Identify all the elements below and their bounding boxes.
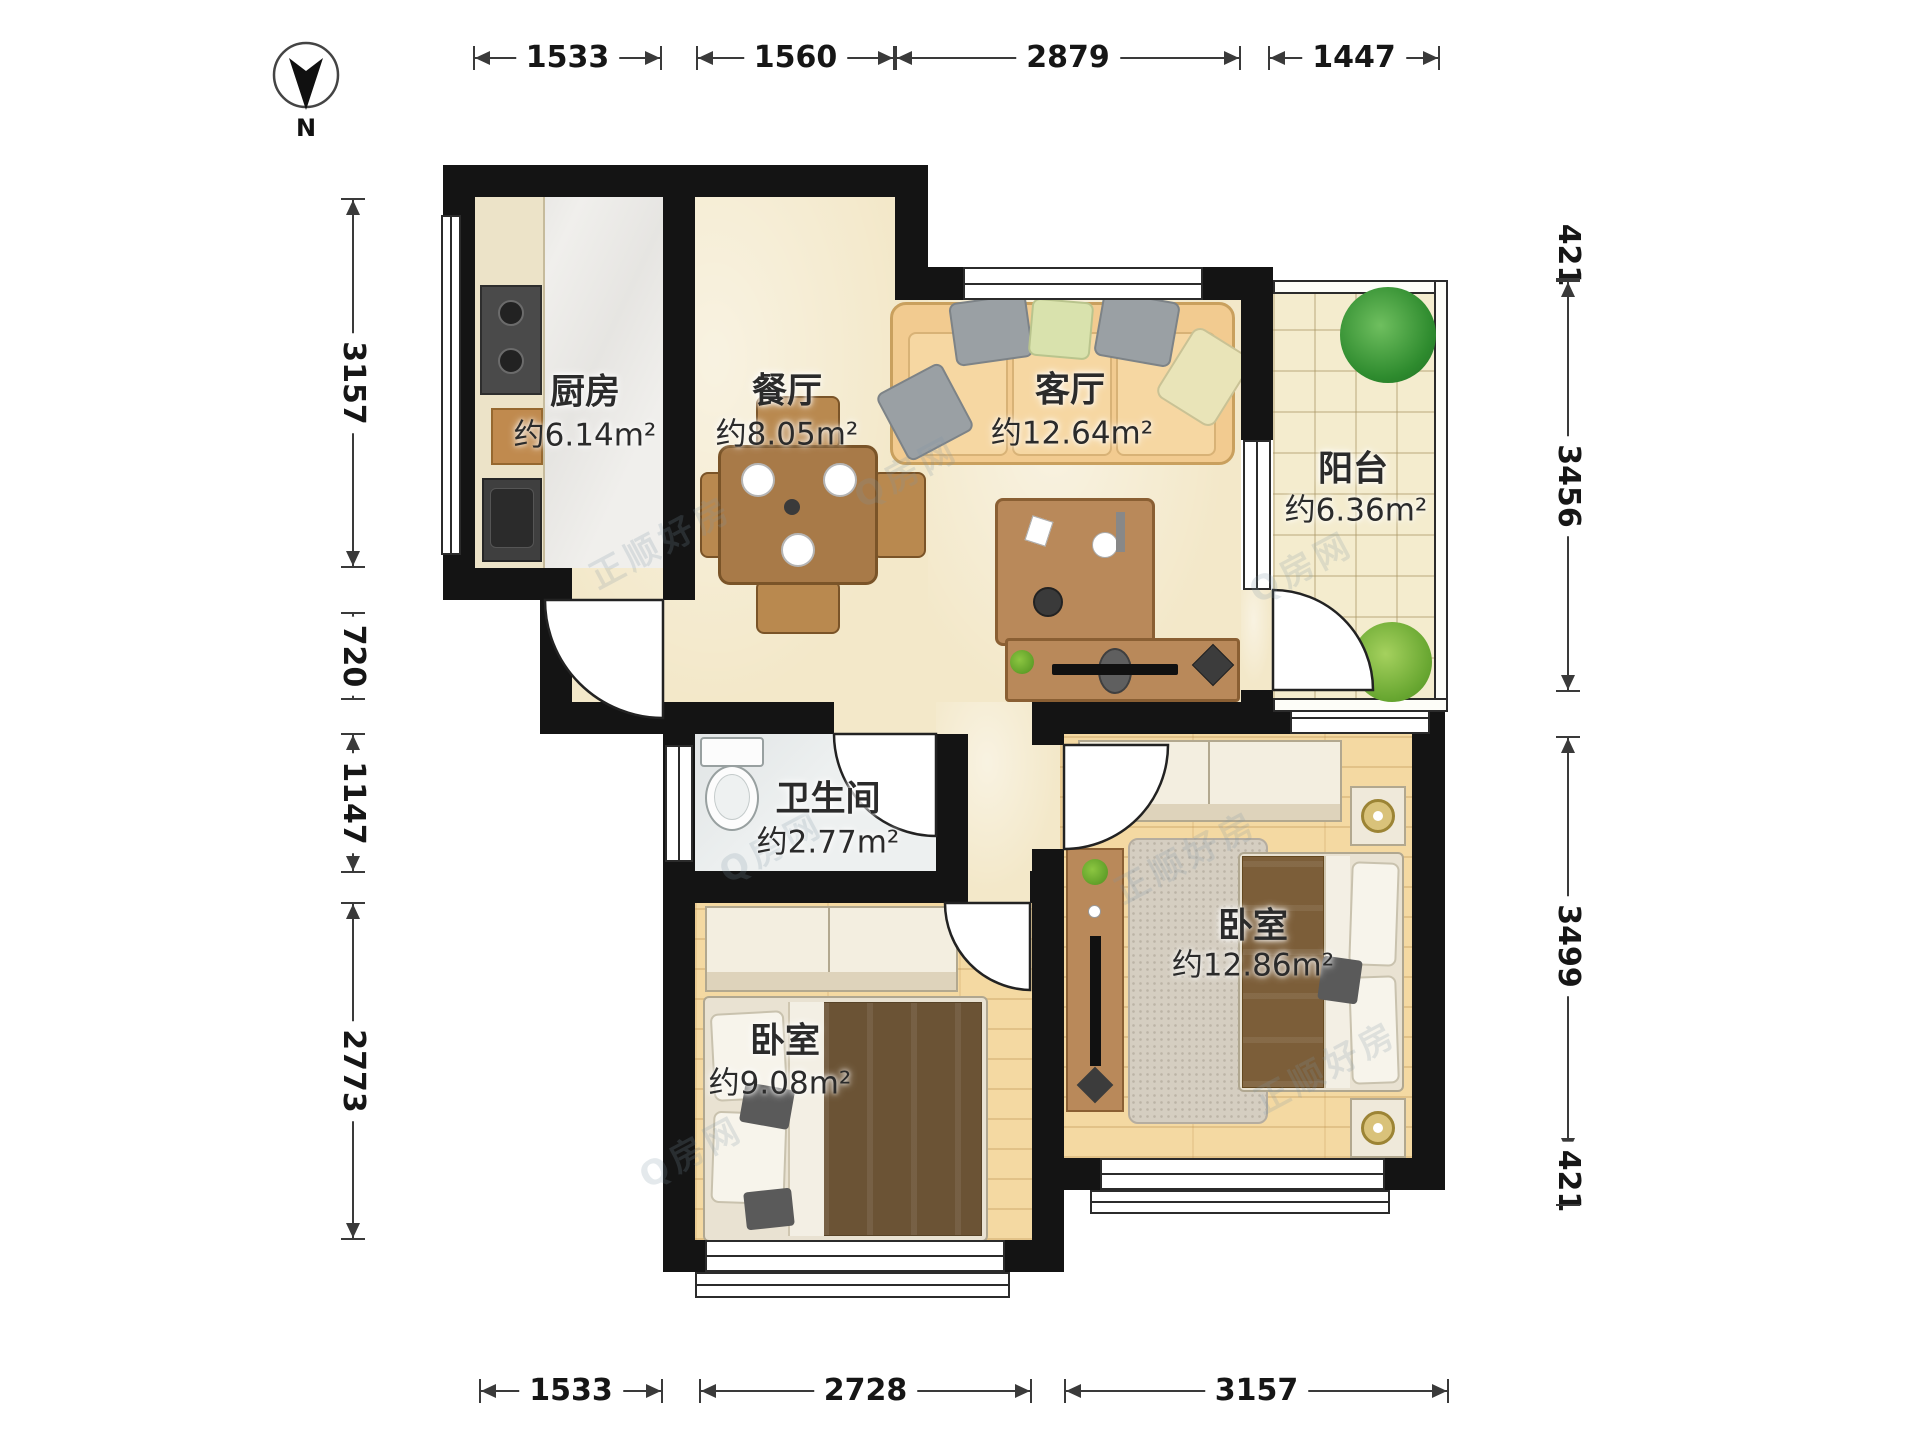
plate [741,463,775,497]
dim-value: 3157 [1205,1375,1309,1407]
nightstand-lamp-center [1373,1123,1383,1133]
potted-plant-icon [1010,650,1034,674]
coffee-table [995,498,1155,646]
wall [1412,702,1445,1190]
dining-area-label: 约8.05m² [716,420,859,451]
compass-icon [263,28,349,124]
dim-left-2: 720 [341,612,365,700]
window-sill [695,1272,1010,1298]
dim-value: 720 [337,617,369,696]
dim-bottom-2: 2728 [699,1379,1032,1403]
potted-plant-icon [1082,859,1108,885]
window [1100,1158,1385,1190]
throw-pillow [1028,297,1095,360]
window-sill [1090,1190,1390,1214]
table-centerpiece [784,499,800,515]
dim-bottom-1: 1533 [479,1379,663,1403]
dim-top-3: 2879 [895,46,1241,70]
dim-value: 1447 [1302,42,1406,74]
dim-left-3: 1147 [341,733,365,873]
window [665,745,693,862]
coffee-table-vase [1116,512,1125,552]
dim-value: 2773 [337,1021,369,1121]
wall [1241,690,1273,734]
dim-value: 2879 [1016,42,1120,74]
dim-top-4: 1447 [1268,46,1440,70]
dim-value: 1533 [519,1375,623,1407]
kitchen-label: 厨房 [550,376,620,411]
bedroom-large-area-label: 约12.86m² [1172,951,1334,982]
sink-basin [490,488,534,548]
wall [1241,267,1273,440]
nightstand-lamp-center [1373,811,1383,821]
bathroom-area-label: 约2.77m² [757,828,900,859]
living-label: 客厅 [1035,374,1105,409]
wall [663,568,695,600]
coffee-table-bowl [1033,587,1063,617]
dim-value: 1147 [337,753,369,853]
dining-chair [756,580,840,634]
wall [895,165,928,300]
toilet-tank [700,737,764,767]
throw-pillow [1093,290,1181,369]
window [441,215,461,555]
dim-value: 1533 [516,42,620,74]
wall [443,568,545,600]
wardrobe-shelf-band [707,972,956,990]
throw-pillow [948,293,1034,367]
plate [781,533,815,567]
kitchen-area-label: 约6.14m² [514,421,657,452]
dim-value: 3157 [337,333,369,433]
balcony-plant [1340,287,1436,383]
dim-value: 421 [1552,1141,1584,1220]
balcony-glass-wall [1273,698,1448,712]
dining-label: 餐厅 [752,375,822,410]
dim-value: 2728 [814,1375,918,1407]
dim-right-2: 3456 [1556,280,1580,692]
dim-value: 1560 [744,42,848,74]
wall [663,871,945,903]
dim-bottom-3: 3157 [1064,1379,1449,1403]
dim-value: 3499 [1552,896,1584,996]
toilet-bowl-inner [714,774,750,820]
window [963,267,1203,300]
dim-right-1: 421 [1556,229,1580,280]
bedroom-large-label: 卧室 [1218,910,1288,945]
coffee-table-plate [1092,532,1118,558]
wall [1032,871,1064,1272]
bathroom-label: 卫生间 [775,783,880,818]
window [705,1240,1005,1272]
compass-north-label: N [296,114,316,142]
tv-screen [1052,664,1178,675]
balcony-label: 阳台 [1318,453,1388,488]
balcony-glass-wall [1434,280,1448,712]
dim-value: 3456 [1552,436,1584,536]
dim-right-3: 3499 [1556,736,1580,1155]
dim-top-1: 1533 [473,46,662,70]
balcony-area-label: 约6.36m² [1285,496,1428,527]
bed-duvet [822,1002,982,1236]
stove-burner [498,348,524,374]
balcony-glass-wall [1273,280,1448,294]
dim-left-4: 2773 [341,902,365,1240]
bedroom-small-area-label: 约9.08m² [709,1069,852,1100]
bedroom-tv-screen [1090,936,1101,1066]
bed-throw [743,1188,795,1231]
living-area-label: 约12.64m² [991,419,1153,450]
stove-burner [498,300,524,326]
cabinet-dot [1088,905,1101,918]
bed-pillow [1348,861,1400,967]
balcony-plant [1352,622,1432,702]
bedroom-small-label: 卧室 [750,1025,820,1060]
dim-top-2: 1560 [696,46,895,70]
floor-plan: 正顺好房 Q房网 Q房网 Q房网 正顺好房 Q房网 正顺好房 厨房 约6.14m… [0,0,1920,1440]
dim-left-1: 3157 [341,198,365,568]
dim-right-4: 421 [1556,1155,1580,1206]
wall [1032,702,1064,745]
